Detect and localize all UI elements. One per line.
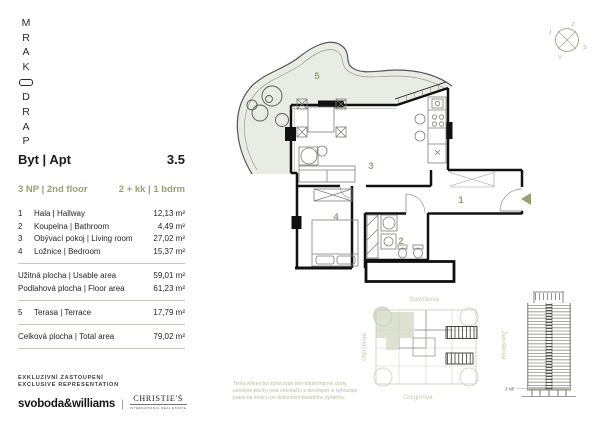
- street-label-bottom: Gregorova: [403, 394, 433, 401]
- logo-separator: |: [121, 399, 124, 410]
- disclaimer-line: Tento výkres byl zpracován pro marketing…: [233, 381, 368, 388]
- broker-logos: svoboda&williams | CHRISTIE'S INTERNATIO…: [18, 394, 187, 410]
- drawing-layer: Z J S V: [0, 0, 600, 422]
- disclaimer-text: Tento výkres byl zpracován pro marketing…: [233, 381, 368, 401]
- room-label-living: 3: [368, 161, 373, 172]
- representation-block: EXKLUZIVNÍ ZASTOUPENÍ EXCLUSIVE REPRESEN…: [18, 375, 187, 410]
- hall-closet: [450, 171, 494, 187]
- disclaimer-line: právo na změnu po dokončení fasádního sy…: [233, 395, 368, 402]
- floor-plan: 5 3 4 2 1: [237, 42, 531, 281]
- christies-wordmark: CHRISTIE'S: [130, 394, 187, 403]
- street-label-left: Ostrčilova: [361, 333, 368, 361]
- compass-west-label: Z: [571, 22, 575, 28]
- room-label-terrace: 5: [314, 71, 320, 82]
- compass-south-label: J: [549, 30, 552, 36]
- compass-east-label: V: [558, 55, 562, 61]
- floorplan-sheet: M R A K D R A P Byt | Apt 3.5 3 NP | 2nd…: [0, 0, 600, 422]
- compass-north-label: S: [583, 45, 587, 51]
- site-plan: Slavíčkova Gregorova Ostrčilova Ženíškov…: [361, 296, 508, 401]
- svoboda-williams-logo: svoboda&williams: [18, 398, 115, 410]
- representation-line-en: EXCLUSIVE REPRESENTATION: [18, 382, 187, 389]
- bathroom-fixtures: [367, 215, 423, 258]
- christies-logo: CHRISTIE'S INTERNATIONAL REAL ESTATE: [130, 394, 187, 410]
- door-swings: [340, 186, 522, 213]
- street-label-top: Slavíčkova: [409, 296, 439, 303]
- street-label-right: Ženíškova: [500, 331, 508, 360]
- compass-icon: [556, 29, 579, 52]
- tower-elevation: 3 NP: [505, 292, 576, 397]
- entrance-arrow-icon: [521, 193, 531, 205]
- room-label-bedroom: 4: [333, 212, 339, 223]
- tower-floor-marker: 3 NP: [505, 387, 515, 392]
- kitchen-fixtures: [415, 97, 446, 163]
- christies-subline: INTERNATIONAL REAL ESTATE: [130, 404, 187, 410]
- room-label-hallway: 1: [458, 195, 464, 206]
- living-furniture: [297, 99, 355, 182]
- room-label-bathroom: 2: [398, 236, 403, 247]
- disclaimer-line: uvedené plochy jsou orientační a develop…: [233, 388, 368, 395]
- site-stairs: [446, 327, 477, 365]
- representation-line-cz: EXKLUZIVNÍ ZASTOUPENÍ: [18, 375, 187, 382]
